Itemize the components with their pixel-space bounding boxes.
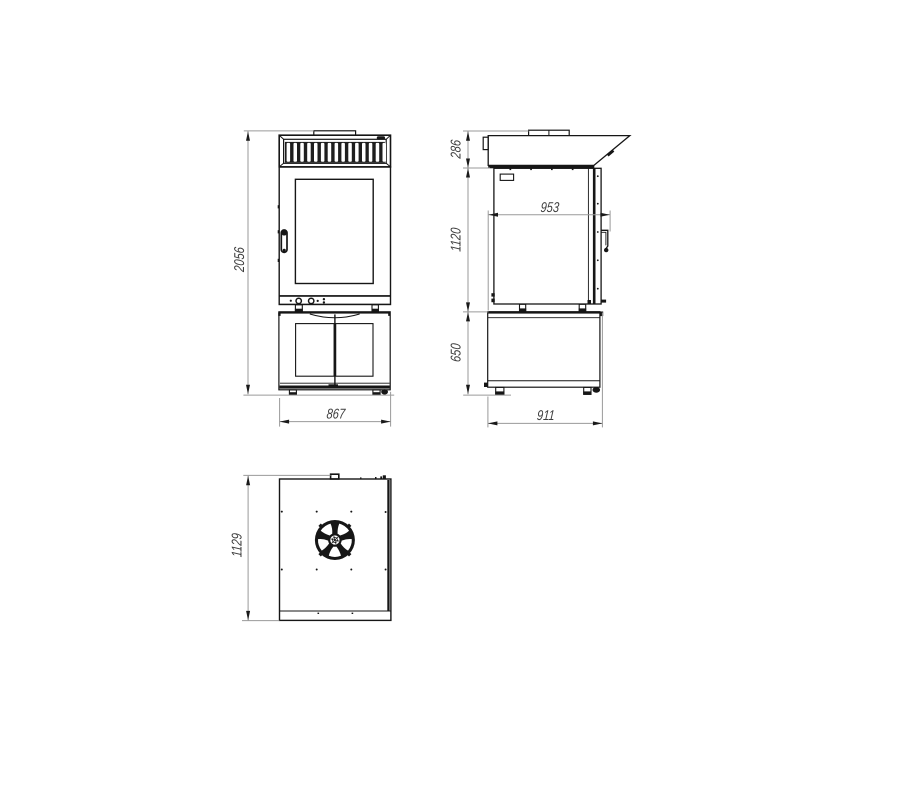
svg-text:1120: 1120 — [447, 227, 464, 252]
svg-text:286: 286 — [447, 138, 464, 159]
svg-text:867: 867 — [326, 405, 347, 422]
svg-text:2056: 2056 — [231, 246, 248, 274]
svg-text:911: 911 — [536, 406, 555, 423]
svg-text:650: 650 — [447, 343, 464, 363]
svg-text:953: 953 — [540, 199, 560, 216]
svg-text:1129: 1129 — [228, 533, 245, 558]
